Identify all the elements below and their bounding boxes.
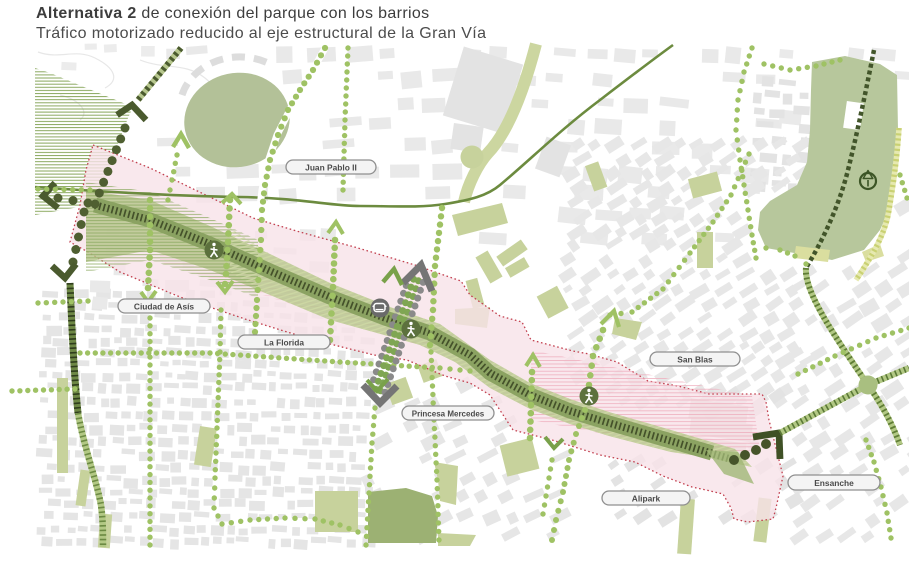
svg-text:La Florida: La Florida	[264, 338, 304, 348]
svg-text:Ciudad de Asís: Ciudad de Asís	[134, 302, 195, 312]
svg-text:Alternativa 2 de conexión del: Alternativa 2 de conexión del parque con…	[36, 5, 430, 22]
svg-text:Princesa Mercedes: Princesa Mercedes	[412, 410, 485, 419]
svg-text:Juan Pablo II: Juan Pablo II	[305, 163, 357, 173]
svg-text:San Blas: San Blas	[677, 355, 713, 365]
svg-text:Ensanche: Ensanche	[814, 478, 854, 488]
svg-text:Tráfico motorizado reducido al: Tráfico motorizado reducido al eje estru…	[36, 25, 486, 42]
svg-text:Alipark: Alipark	[632, 494, 661, 504]
